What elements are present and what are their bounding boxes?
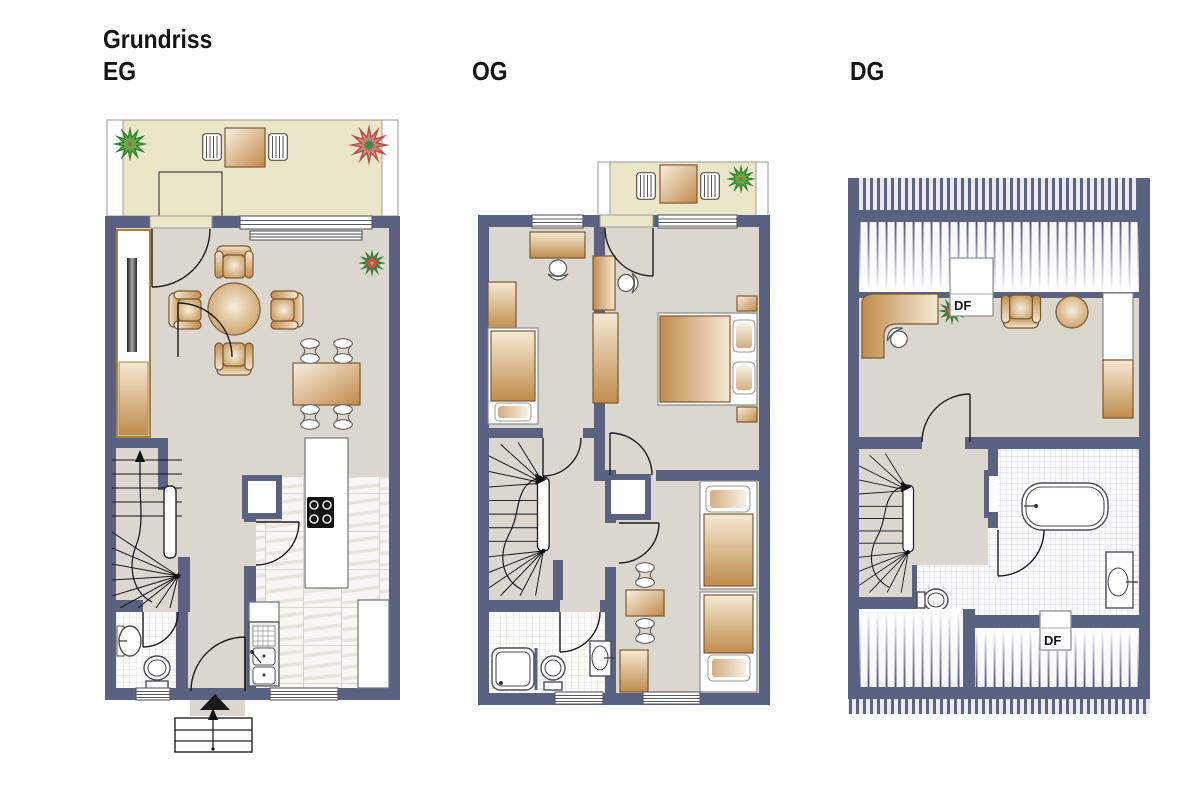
terrace-chair-icon — [203, 134, 222, 161]
terrace-table — [225, 128, 265, 167]
bathtub-icon — [1022, 483, 1108, 530]
armchair-icon — [1001, 295, 1040, 328]
bed-icon — [700, 592, 757, 692]
floor-plan-eg — [95, 85, 410, 760]
wardrobe — [593, 313, 618, 403]
toilet-icon — [541, 656, 565, 690]
cooktop-icon — [307, 497, 334, 528]
toilet-icon — [917, 589, 948, 611]
terrace-door-opening — [150, 216, 212, 228]
kitchen-sink-icon — [249, 602, 279, 686]
balcony-table — [660, 165, 697, 203]
desk-chair-icon — [548, 260, 568, 280]
bath-sink-icon — [1106, 552, 1138, 608]
dg-roof — [848, 178, 1150, 298]
armchair-icon — [169, 291, 201, 329]
wc-toilet-icon — [144, 656, 170, 689]
bed-icon — [488, 328, 538, 424]
roof-window-1: DF — [950, 258, 993, 316]
wardrobe — [488, 282, 516, 330]
bath-sink-icon — [590, 641, 614, 676]
floor-label-og: OG — [472, 56, 508, 87]
nightstand — [737, 296, 757, 311]
floor-label-dg: DG — [850, 56, 884, 87]
shelf — [1103, 293, 1133, 360]
wc — [116, 612, 176, 689]
entrance-steps — [175, 694, 252, 752]
floor-label-eg: EG — [103, 56, 136, 87]
shower-icon — [492, 648, 536, 690]
desk — [593, 256, 615, 310]
balcony-chair-icon — [701, 173, 720, 200]
wc-sink-icon — [117, 626, 141, 656]
armchair-icon — [215, 246, 253, 278]
desk-chair-icon — [618, 273, 638, 293]
round-table — [208, 283, 260, 335]
balcony — [598, 162, 768, 218]
og-bathroom — [489, 612, 614, 693]
floor-plan-dg: DF DF — [838, 170, 1160, 720]
terrace — [107, 120, 398, 216]
desk — [530, 232, 585, 258]
table — [626, 590, 664, 616]
roof-window-2: DF — [1040, 611, 1071, 650]
floorplan-canvas: Grundriss EG OG DG — [0, 0, 1200, 800]
double-bed-icon — [658, 313, 757, 405]
wardrobe — [620, 650, 648, 692]
floor-plan-og — [460, 150, 780, 715]
wardrobe — [1103, 360, 1133, 418]
balcony-chair-icon — [637, 173, 656, 200]
dining-table — [293, 363, 360, 405]
bed-icon — [700, 481, 757, 589]
roof-overhang — [848, 699, 1150, 714]
kitchen-counter — [358, 600, 389, 688]
armchair-icon — [271, 291, 303, 329]
roof-window-label: DF — [954, 298, 971, 313]
sideboard — [117, 230, 150, 437]
nightstand — [737, 407, 757, 422]
roof-overhang — [848, 178, 1150, 210]
balcony-door-opening — [600, 215, 653, 227]
page-title: Grundriss — [103, 24, 212, 55]
armchair-icon — [215, 343, 253, 375]
pouf — [1056, 296, 1088, 328]
roof-window-label: DF — [1044, 633, 1061, 648]
terrace-chair-icon — [269, 134, 288, 161]
